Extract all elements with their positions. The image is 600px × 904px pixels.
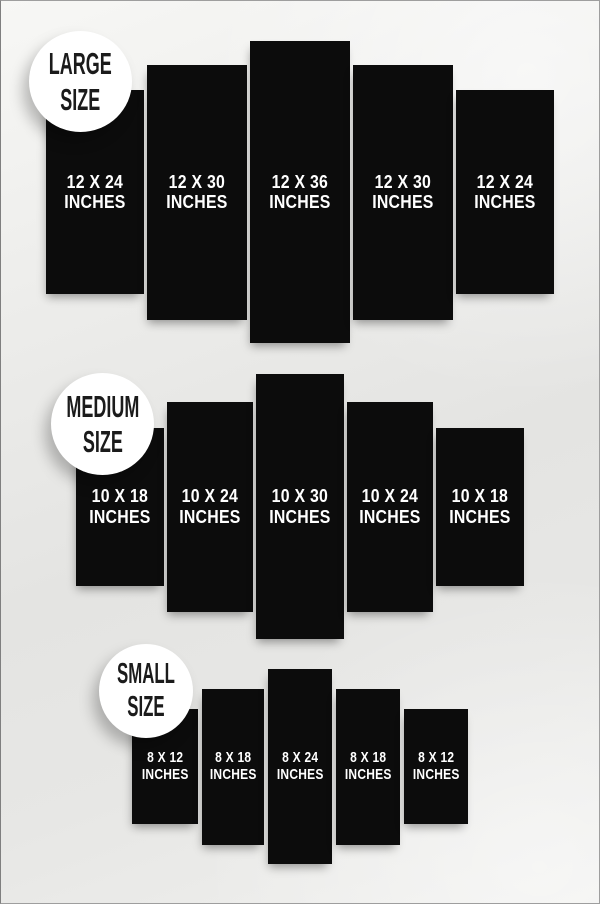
panel-size-label: 12 X 30 INCHES — [166, 172, 227, 212]
panel-unit: INCHES — [359, 507, 420, 527]
panel-size-label: 10 X 18 INCHES — [449, 486, 510, 526]
panel-dimensions: 12 X 36 — [269, 172, 330, 192]
panel-10x24: 10 X 24 INCHES — [347, 402, 433, 612]
panel-dimensions: 8 X 24 — [277, 750, 324, 767]
panel-10x18: 10 X 18 INCHES — [436, 428, 524, 586]
panel-dimensions: 12 X 24 — [474, 172, 535, 192]
panel-dimensions: 8 X 18 — [345, 750, 392, 767]
panel-size-label: 12 X 30 INCHES — [372, 172, 433, 212]
panel-unit: INCHES — [210, 767, 257, 784]
large-size-badge: LARGE SIZE — [29, 31, 132, 132]
panel-8x12: 8 X 12 INCHES — [404, 709, 468, 824]
panel-8x18: 8 X 18 INCHES — [336, 689, 400, 845]
large-size-badge-label: LARGE SIZE — [49, 46, 112, 116]
panel-unit: INCHES — [142, 767, 189, 784]
panel-dimensions: 10 X 24 — [359, 486, 420, 506]
small-panels-row: 8 X 12 INCHES 8 X 18 INCHES 8 X 24 INCHE… — [1, 669, 599, 864]
panel-unit: INCHES — [474, 192, 535, 212]
panel-unit: INCHES — [179, 507, 240, 527]
panel-8x24: 8 X 24 INCHES — [268, 669, 332, 864]
badge-line2: SIZE — [117, 691, 175, 724]
panel-unit: INCHES — [277, 767, 324, 784]
panel-size-label: 8 X 18 INCHES — [345, 750, 392, 784]
panel-12x24: 12 X 24 INCHES — [456, 90, 554, 294]
panel-dimensions: 10 X 30 — [269, 486, 330, 506]
badge-line1: MEDIUM — [66, 389, 139, 424]
panel-size-label: 8 X 18 INCHES — [210, 750, 257, 784]
panel-size-label: 10 X 24 INCHES — [359, 486, 420, 526]
panel-dimensions: 8 X 12 — [142, 750, 189, 767]
panel-dimensions: 10 X 18 — [449, 486, 510, 506]
panel-10x24: 10 X 24 INCHES — [167, 402, 253, 612]
small-size-badge: SMALL SIZE — [99, 644, 193, 738]
medium-size-badge-label: MEDIUM SIZE — [66, 389, 139, 459]
panel-unit: INCHES — [89, 507, 150, 527]
panel-12x30: 12 X 30 INCHES — [147, 65, 247, 320]
panel-size-label: 8 X 12 INCHES — [413, 750, 460, 784]
panel-size-label: 12 X 24 INCHES — [474, 172, 535, 212]
panel-dimensions: 10 X 24 — [179, 486, 240, 506]
panel-unit: INCHES — [372, 192, 433, 212]
panel-unit: INCHES — [166, 192, 227, 212]
panel-size-label: 10 X 18 INCHES — [89, 486, 150, 526]
panel-dimensions: 8 X 12 — [413, 750, 460, 767]
canvas-size-chart: 12 X 24 INCHES 12 X 30 INCHES 12 X 36 IN… — [0, 0, 600, 904]
panel-size-label: 8 X 12 INCHES — [142, 750, 189, 784]
panel-dimensions: 12 X 30 — [372, 172, 433, 192]
panel-size-label: 12 X 36 INCHES — [269, 172, 330, 212]
small-size-badge-label: SMALL SIZE — [117, 658, 175, 724]
panel-dimensions: 12 X 24 — [64, 172, 125, 192]
badge-line2: SIZE — [49, 82, 112, 117]
panel-size-label: 10 X 24 INCHES — [179, 486, 240, 526]
panel-size-label: 10 X 30 INCHES — [269, 486, 330, 526]
panel-unit: INCHES — [449, 507, 510, 527]
panel-unit: INCHES — [64, 192, 125, 212]
panel-10x30: 10 X 30 INCHES — [256, 374, 344, 639]
badge-line1: LARGE — [49, 46, 112, 81]
panel-unit: INCHES — [269, 507, 330, 527]
panel-dimensions: 10 X 18 — [89, 486, 150, 506]
badge-line1: SMALL — [117, 658, 175, 691]
panel-dimensions: 12 X 30 — [166, 172, 227, 192]
panel-unit: INCHES — [269, 192, 330, 212]
panel-12x30: 12 X 30 INCHES — [353, 65, 453, 320]
panel-12x36: 12 X 36 INCHES — [250, 41, 350, 343]
medium-size-badge: MEDIUM SIZE — [51, 373, 154, 475]
badge-line2: SIZE — [66, 424, 139, 459]
panel-dimensions: 8 X 18 — [210, 750, 257, 767]
panel-size-label: 8 X 24 INCHES — [277, 750, 324, 784]
panel-unit: INCHES — [345, 767, 392, 784]
panel-unit: INCHES — [413, 767, 460, 784]
panel-size-label: 12 X 24 INCHES — [64, 172, 125, 212]
panel-8x18: 8 X 18 INCHES — [202, 689, 264, 845]
